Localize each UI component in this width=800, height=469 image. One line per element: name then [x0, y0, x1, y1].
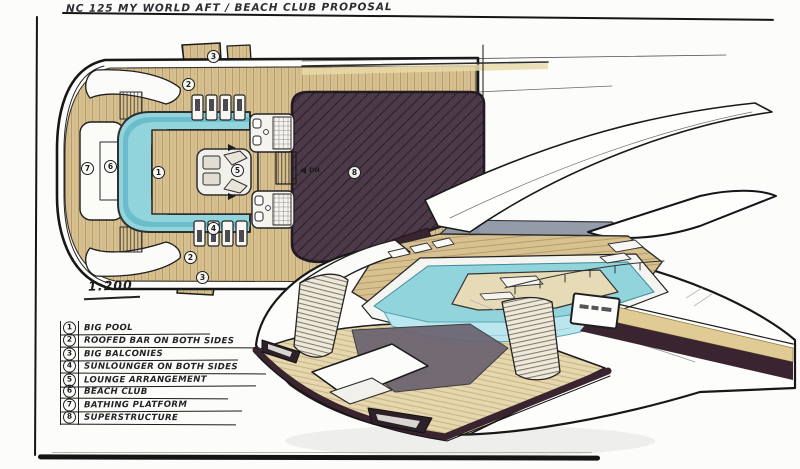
legend-item-roofed-bar: 2 ROOFED BAR ON BOTH SIDES [60, 334, 260, 348]
frame-bottom-shadow [52, 452, 592, 453]
legend-item-balconies: 3 BIG BALCONIES [60, 347, 238, 361]
drawing-title: NC 125 MY WORLD AFT / BEACH CLUB PROPOSA… [66, 1, 392, 15]
marker-big-pool: 1 [152, 166, 165, 179]
legend-item-big-pool: 1 BIG POOL [60, 322, 210, 336]
legend-label: ROOFED BAR ON BOTH SIDES [84, 335, 234, 346]
legend-label: BIG BALCONIES [84, 349, 163, 359]
legend-label: BIG POOL [84, 323, 133, 333]
marker-sunloungers: 4 [207, 222, 220, 235]
roof-overhang-wedge [588, 191, 776, 238]
legend-item-beach-club: 6 BEACH CLUB [60, 386, 228, 400]
scale-label: 1:200 [88, 277, 133, 294]
legend-num: 6 [63, 386, 76, 399]
legend-num: 3 [63, 348, 76, 361]
legend-num: 1 [63, 322, 76, 335]
marker-roofed-bar-top: 2 [182, 78, 195, 91]
transom-nameplate [570, 293, 619, 328]
marker-superstructure: 8 [348, 166, 361, 179]
roofed-bar-top [250, 114, 294, 152]
marker-beach-club: 6 [104, 160, 117, 173]
legend-item-sunlounger: 4 SUNLOUNGER ON BOTH SIDES [60, 360, 266, 374]
legend-num: 8 [63, 411, 76, 424]
legend-num: 4 [63, 360, 76, 373]
legend: 1 BIG POOL 2 ROOFED BAR ON BOTH SIDES 3 … [60, 322, 270, 425]
roofed-bar-bottom [252, 191, 294, 228]
marker-roofed-bar-bottom: 2 [184, 251, 197, 264]
marker-balcony-bottom: 3 [196, 271, 209, 284]
legend-label: LOUNGE ARRANGEMENT [84, 374, 207, 385]
legend-label: SUNLOUNGER ON BOTH SIDES [84, 361, 238, 372]
marker-lounge-arrangement: 5 [231, 164, 244, 177]
legend-item-bathing-platform: 7 BATHING PLATFORM [60, 399, 242, 413]
marker-balcony-top: 3 [207, 50, 220, 63]
stairs-down-label: DN [309, 166, 320, 174]
legend-item-superstructure: 8 SUPERSTRUCTURE [60, 412, 236, 426]
legend-label: BATHING PLATFORM [84, 400, 187, 411]
marker-bathing-platform: 7 [81, 162, 94, 175]
yacht-concept-sketch: DN [0, 0, 800, 469]
legend-num: 2 [63, 334, 76, 347]
legend-label: SUPERSTRUCTURE [84, 413, 178, 423]
legend-label: BEACH CLUB [84, 387, 148, 397]
